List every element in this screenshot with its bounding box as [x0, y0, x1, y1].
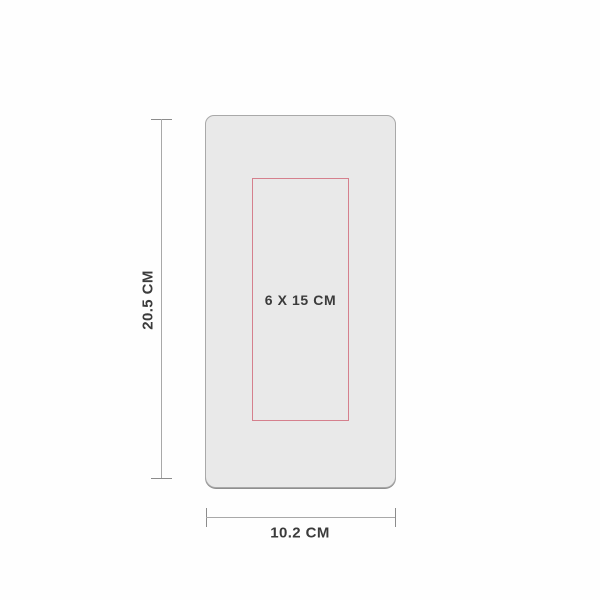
height-dimension-bottom-tick: [151, 478, 172, 479]
width-dimension-right-tick: [395, 508, 396, 527]
height-dimension-line: [161, 119, 162, 479]
dimension-diagram: 20.5 CM 6 X 15 CM 10.2 CM: [0, 0, 600, 600]
width-dimension-line: [206, 517, 396, 518]
height-dimension-label: 20.5 CM: [140, 270, 157, 330]
print-area-rectangle: 6 X 15 CM: [252, 178, 349, 421]
width-dimension-label: 10.2 CM: [270, 525, 330, 542]
print-area-label: 6 X 15 CM: [265, 292, 337, 308]
